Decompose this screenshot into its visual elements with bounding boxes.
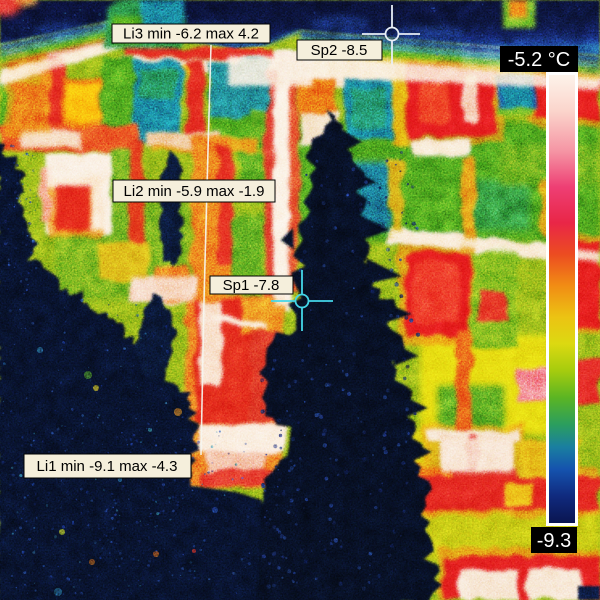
svg-text:Li2 min -5.9 max -1.9: Li2 min -5.9 max -1.9 (124, 183, 265, 200)
svg-text:Sp2 -8.5: Sp2 -8.5 (311, 42, 368, 59)
svg-text:-9.3: -9.3 (537, 530, 571, 552)
svg-text:Sp1 -7.8: Sp1 -7.8 (223, 277, 280, 294)
svg-text:-5.2 °C: -5.2 °C (508, 49, 570, 71)
svg-text:Li1 min -9.1 max -4.3: Li1 min -9.1 max -4.3 (37, 458, 178, 475)
svg-text:Li3 min -6.2 max 4.2: Li3 min -6.2 max 4.2 (123, 26, 259, 43)
